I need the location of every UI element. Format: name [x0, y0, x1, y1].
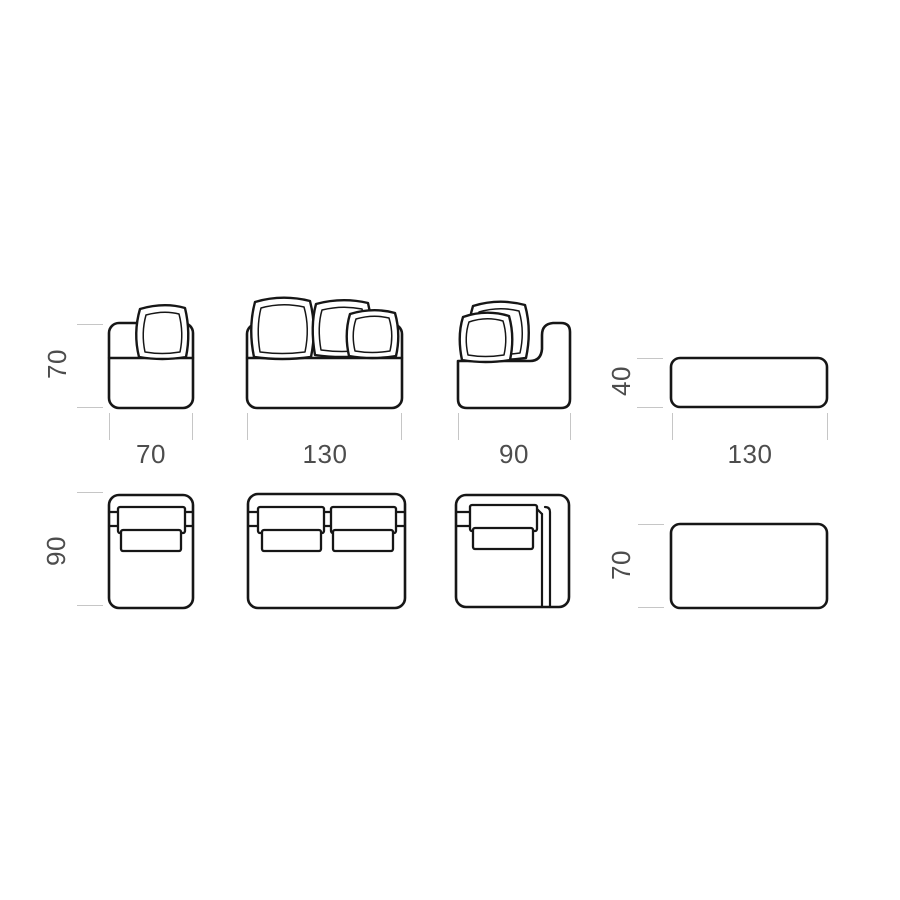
- dim-label-module-small-height: 70: [44, 349, 70, 379]
- dim-tick: [637, 407, 663, 408]
- dim-label-module-corner-width: 90: [499, 441, 529, 467]
- ottoman-top-view: [665, 518, 835, 618]
- dim-tick: [458, 413, 459, 440]
- pillow-flap: [473, 528, 533, 549]
- dim-tick: [401, 413, 402, 440]
- ottoman-front-view: [665, 350, 835, 415]
- pillow-left-flap: [262, 530, 321, 551]
- dim-tick: [77, 605, 103, 606]
- dim-tick: [192, 413, 193, 440]
- dim-tick: [570, 413, 571, 440]
- module-corner-front-view: [450, 290, 580, 415]
- dim-tick: [638, 524, 664, 525]
- module-small-top-view: [95, 488, 205, 616]
- ottoman-body: [671, 358, 827, 407]
- dim-tick: [109, 413, 110, 440]
- dim-tick: [77, 407, 103, 408]
- dim-label-ottoman-width: 130: [728, 441, 773, 467]
- dim-tick: [77, 492, 103, 493]
- module-large-front-view: [240, 290, 410, 415]
- ottoman-outline: [671, 524, 827, 608]
- pillow-flap: [121, 530, 181, 551]
- module-large-top-view: [240, 488, 410, 616]
- sofa-dimension-diagram: 70 70 130 90 40 130 90 70: [0, 0, 900, 900]
- dim-label-module-large-width: 130: [303, 441, 348, 467]
- dim-label-module-small-width: 70: [136, 441, 166, 467]
- dim-tick: [77, 324, 103, 325]
- dim-label-ottoman-height: 40: [608, 366, 634, 396]
- dim-tick: [827, 413, 828, 440]
- dim-label-ottoman-depth: 70: [608, 550, 634, 580]
- module-small-front-view: [95, 293, 205, 418]
- dim-tick: [637, 358, 663, 359]
- dim-tick: [638, 607, 664, 608]
- dim-label-module-depth: 90: [43, 536, 69, 566]
- dim-tick: [672, 413, 673, 440]
- dim-tick: [247, 413, 248, 440]
- pillow-right-flap: [333, 530, 393, 551]
- module-corner-top-view: [450, 488, 580, 616]
